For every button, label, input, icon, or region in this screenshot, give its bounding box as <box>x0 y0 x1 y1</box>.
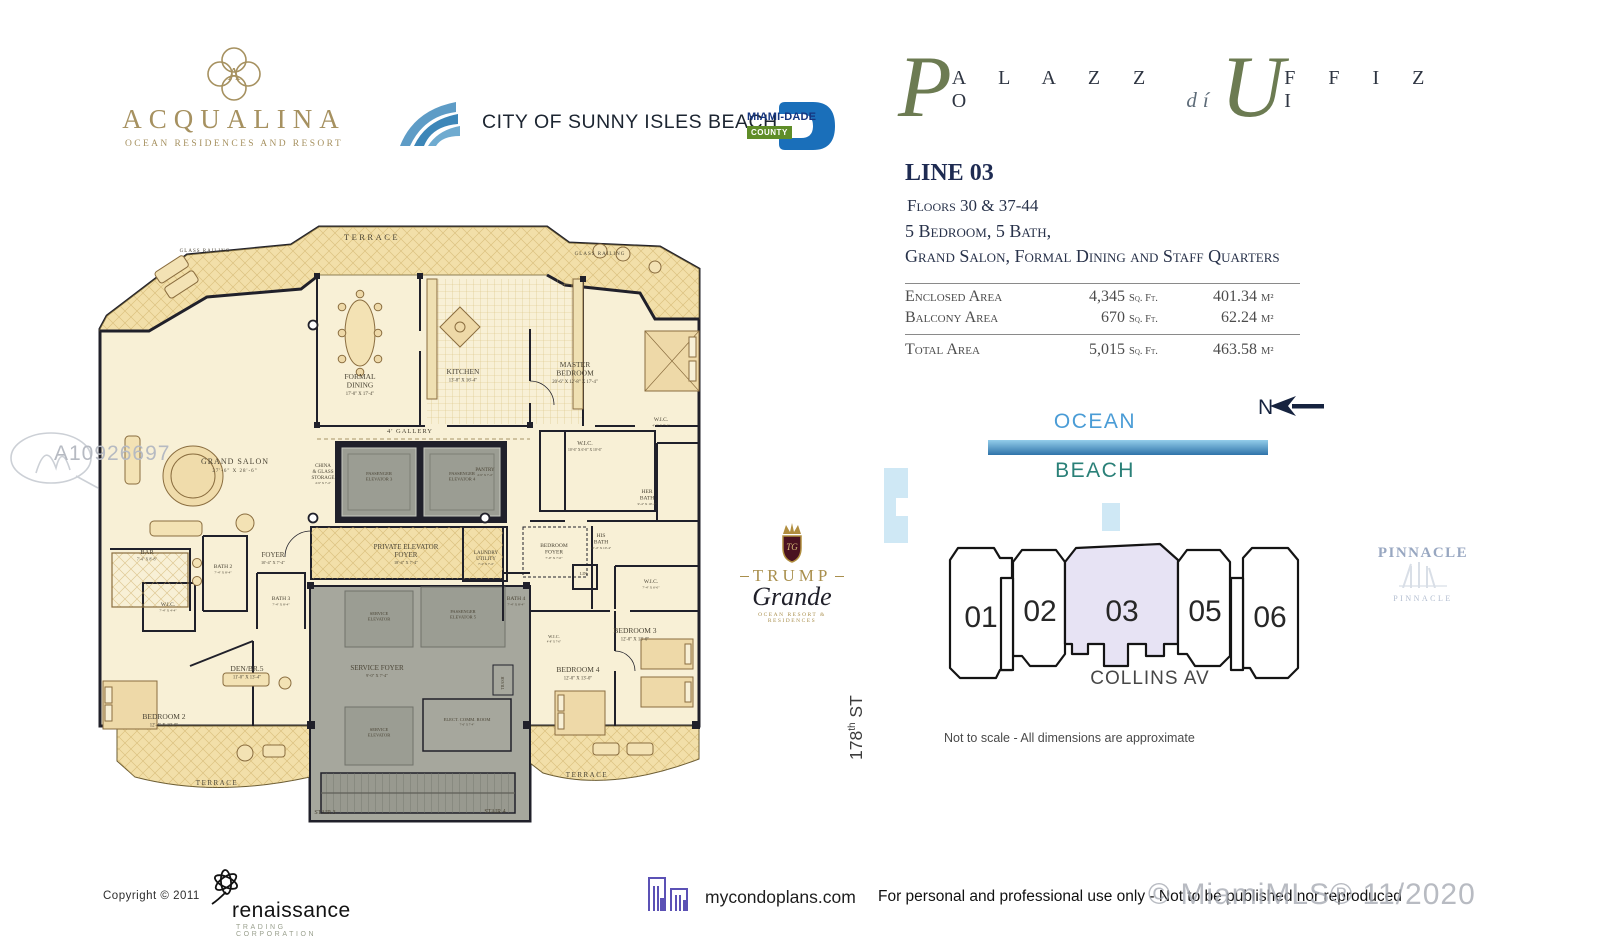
miami-dade-county: COUNTY <box>747 126 792 139</box>
room-label-foyer: FOYER10'-4" X 7'-4" <box>261 551 285 565</box>
renaissance-logo: renaissance TRADING CORPORATION <box>206 868 356 938</box>
area-sqft: 5,015 <box>1063 341 1125 359</box>
palazzo-di-uffizi-title: P A L A Z Z O dí U F F I Z I <box>898 48 1458 148</box>
site-divider-2 <box>1231 578 1243 670</box>
room-label-passenger-elevator-5: PASSENGERELEVATOR 5 <box>450 609 477 620</box>
table-divider <box>905 330 1300 335</box>
mycondoplans-url: mycondoplans.com <box>705 887 856 912</box>
pinnacle-logo: PINNACLE PINNACLE <box>1368 545 1478 603</box>
wave-icon <box>398 96 472 148</box>
area-m2: 463.58 <box>1175 341 1257 359</box>
miamimls-watermark: © MiamiMLS® 11/2020 <box>1148 878 1600 912</box>
acqualina-tagline: OCEAN RESIDENCES AND RESORT <box>118 139 350 149</box>
room-label-passenger-elevator-4: PASSENGERELEVATOR 4 <box>449 471 476 482</box>
ocean-label: OCEAN <box>1054 410 1136 433</box>
room-label-terrace-bottom-left: TERRACE <box>196 779 238 787</box>
palazzo-script-u: U <box>1221 48 1285 127</box>
miami-dade-logo: MIAMI-DADE COUNTY <box>747 102 835 152</box>
not-to-scale-note: Not to scale - All dimensions are approx… <box>944 731 1195 745</box>
renaissance-name: renaissance <box>232 899 356 923</box>
buildings-icon <box>645 868 691 912</box>
room-label-den-br5: DEN/BR.511'-0" X 13'-4" <box>230 664 263 681</box>
pinnacle-name: PINNACLE <box>1368 545 1478 562</box>
acqualina-name: ACQUALINA <box>118 104 350 135</box>
area-m2: 401.34 <box>1175 288 1257 306</box>
copyright-text: Copyright © 2011 <box>103 890 200 902</box>
pinnacle-building-icon <box>1395 562 1451 588</box>
table-row-balcony: Balcony Area 670 Sq. Ft. 62.24 M² <box>905 309 1300 330</box>
room-label-pantry: PANTRY4'-9" X 7'-4" <box>475 468 495 477</box>
area-table: Enclosed Area 4,345 Sq. Ft. 401.34 M² Ba… <box>905 283 1300 362</box>
room-label-wic-top-right: W.I.C.4'-0" X 7'-4" <box>652 417 670 428</box>
floorplan-drawing: GLASS RAILINGTERRACEGLASS RAILINGFORMALD… <box>95 221 715 827</box>
room-label-terrace-bottom-right: TERRACE <box>566 771 608 779</box>
site-unit-label-02: 02 <box>1023 595 1056 628</box>
north-label: N <box>1258 396 1273 419</box>
svg-text:A: A <box>228 64 241 84</box>
shoreline-bar <box>988 440 1268 455</box>
178th-st-label: 178th ST <box>846 695 867 760</box>
pinnacle-name-small: PINNACLE <box>1368 594 1478 603</box>
room-label-formal-dining: FORMALDINING17'-0" X 17'-4" <box>344 372 376 397</box>
table-row-enclosed: Enclosed Area 4,345 Sq. Ft. 401.34 M² <box>905 288 1300 309</box>
area-label: Enclosed Area <box>905 288 1063 306</box>
mls-watermark-left: A10926697 <box>6 428 226 490</box>
room-label-trash: TRASH <box>500 676 505 689</box>
floorplan-sheet: A ACQUALINA OCEAN RESIDENCES AND RESORT … <box>0 0 1600 942</box>
room-label-passenger-elevator-3: PASSENGERELEVATOR 3 <box>366 471 393 482</box>
site-unit-label-05: 05 <box>1188 595 1221 628</box>
room-label-gallery: 4' GALLERY <box>387 428 433 435</box>
sqft-unit: Sq. Ft. <box>1125 314 1175 325</box>
sunny-isles-name: CITY OF SUNNY ISLES BEACH <box>482 111 778 134</box>
room-label-lin: LIN. <box>580 571 589 576</box>
bed-bath-config: 5 Bedroom, 5 Bath, <box>905 221 1051 242</box>
trump-tagline: OCEAN RESORT & RESIDENCES <box>740 612 844 624</box>
kitchen-floor <box>427 279 583 424</box>
trump-grande-script: Grande <box>740 582 844 612</box>
acqualina-logo: A ACQUALINA OCEAN RESIDENCES AND RESORT <box>118 46 350 149</box>
site-unit-label-03: 03 <box>1105 595 1138 628</box>
site-diagram: N OCEAN BEACH 0102030506 <box>860 378 1420 768</box>
m2-unit: M² <box>1257 314 1287 325</box>
area-label: Total Area <box>905 341 1063 359</box>
trump-crest-icon: TG <box>774 522 810 564</box>
palazzo-ffizi: F F I Z I <box>1284 67 1458 113</box>
table-row-total: Total Area 5,015 Sq. Ft. 463.58 M² <box>905 341 1300 362</box>
room-label-bath-2: BATH 27'-4" X 8'-4" <box>214 564 233 575</box>
site-unit-label-01: 01 <box>964 601 997 634</box>
sqft-unit: Sq. Ft. <box>1125 346 1175 357</box>
room-label-wic-bed4: W.I.C.4'-8" X 7'-0" <box>547 634 561 644</box>
room-label-terrace-top: TERRACE <box>344 232 400 242</box>
service-core <box>310 586 530 821</box>
line-number: LINE 03 <box>905 160 994 187</box>
renaissance-tagline: TRADING CORPORATION <box>236 924 356 938</box>
floors-info: Floors 30 & 37-44 <box>907 196 1038 216</box>
sqft-unit: Sq. Ft. <box>1125 293 1175 304</box>
area-sqft: 670 <box>1063 309 1125 327</box>
north-arrow-icon <box>1270 396 1324 416</box>
area-label: Balcony Area <box>905 309 1063 327</box>
palazzo-di: dí <box>1186 88 1214 113</box>
m2-unit: M² <box>1257 293 1287 304</box>
svg-text:TG: TG <box>786 542 798 552</box>
room-label-kitchen: KITCHEN13'-8" X 16'-4" <box>447 367 480 384</box>
palazzo-script-p: P <box>898 48 952 127</box>
elevator-block <box>335 441 507 523</box>
room-label-stair-4: STAIR 4 <box>484 809 505 815</box>
miami-dade-name: MIAMI-DADE <box>747 111 816 123</box>
room-label-service-elevator-lower: SERVICEELEVATOR <box>368 727 391 738</box>
room-label-bath-4: BATH 47'-4" X 8'-4" <box>507 596 526 607</box>
site-unit-label-06: 06 <box>1253 601 1286 634</box>
area-sqft: 4,345 <box>1063 288 1125 306</box>
room-label-bath-3: BATH 37'-4" X 8'-4" <box>272 596 291 607</box>
collins-av-label: COLLINS AV <box>1040 668 1260 690</box>
room-label-glass-railing-left: GLASS RAILING <box>180 249 231 254</box>
room-label-stair-3: STAIR 3 <box>314 810 335 816</box>
mycondoplans-logo: mycondoplans.com <box>645 868 856 912</box>
area-m2: 62.24 <box>1175 309 1257 327</box>
mls-id: A10926697 <box>54 442 170 466</box>
palazzo-alazzo: A L A Z Z O <box>952 67 1181 113</box>
beach-label: BEACH <box>1055 459 1135 482</box>
room-label-glass-railing-right: GLASS RAILING <box>575 252 626 257</box>
unit-features: Grand Salon, Formal Dining and Staff Qua… <box>905 246 1280 267</box>
site-divider-1 <box>1001 578 1013 670</box>
trump-grande-logo: TG TRUMP Grande OCEAN RESORT & RESIDENCE… <box>740 522 844 624</box>
sunny-isles-logo: CITY OF SUNNY ISLES BEACH <box>398 96 778 148</box>
room-label-service-elevator-upper: SERVICEELEVATOR <box>368 611 391 622</box>
room-label-wic-bed3: W.I.C.7'-4" X 6'-0" <box>642 579 660 590</box>
m2-unit: M² <box>1257 346 1287 357</box>
acqualina-emblem-icon: A <box>206 46 262 102</box>
room-label-wic-left: W.I.C.7'-4" X 4'-4" <box>159 602 177 613</box>
